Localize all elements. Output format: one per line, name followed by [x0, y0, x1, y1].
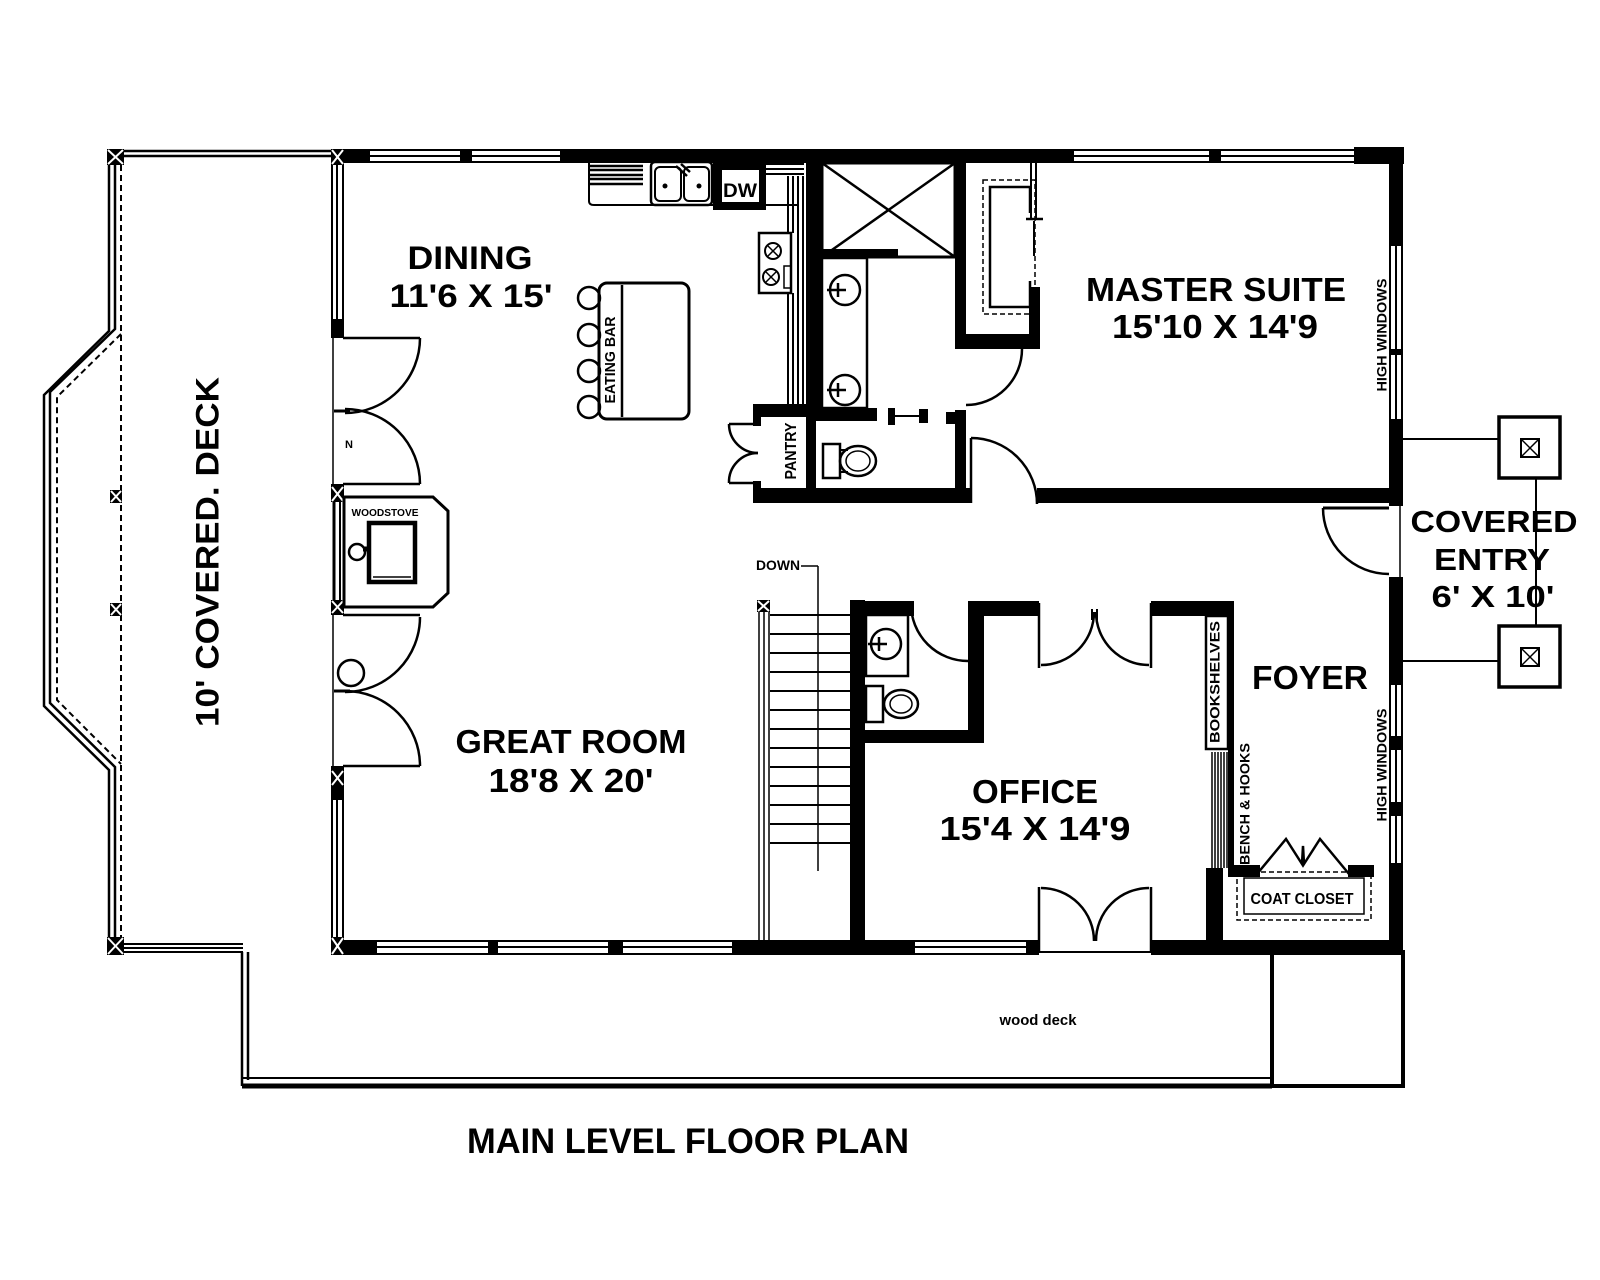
svg-text:11'6 X 15': 11'6 X 15' [390, 278, 553, 314]
svg-text:wood deck: wood deck [999, 1012, 1078, 1029]
svg-text:BOOKSHELVES: BOOKSHELVES [1207, 621, 1223, 743]
svg-text:15'10 X 14'9: 15'10 X 14'9 [1112, 308, 1318, 345]
svg-text:BENCH & HOOKS: BENCH & HOOKS [1237, 743, 1253, 865]
svg-text:HIGH WINDOWS: HIGH WINDOWS [1374, 279, 1390, 392]
svg-text:15'4 X 14'9: 15'4 X 14'9 [940, 810, 1131, 847]
svg-text:WOODSTOVE: WOODSTOVE [352, 508, 419, 519]
svg-text:DOWN: DOWN [756, 557, 800, 573]
svg-text:MASTER SUITE: MASTER SUITE [1086, 271, 1346, 308]
svg-text:FOYER: FOYER [1252, 659, 1368, 696]
svg-text:GREAT ROOM: GREAT ROOM [456, 723, 687, 760]
svg-text:COVERED: COVERED [1411, 504, 1578, 539]
svg-text:HIGH WINDOWS: HIGH WINDOWS [1374, 709, 1390, 822]
svg-text:N: N [345, 439, 353, 451]
svg-text:18'8 X 20': 18'8 X 20' [489, 762, 654, 799]
svg-text:DINING: DINING [408, 240, 533, 276]
svg-text:DW: DW [723, 181, 757, 202]
svg-text:EATING BAR: EATING BAR [602, 316, 619, 403]
svg-text:PANTRY: PANTRY [783, 422, 800, 479]
svg-text:COAT CLOSET: COAT CLOSET [1251, 891, 1354, 908]
svg-text:MAIN LEVEL FLOOR PLAN: MAIN LEVEL FLOOR PLAN [467, 1122, 909, 1161]
svg-text:ENTRY: ENTRY [1434, 542, 1550, 577]
svg-text:OFFICE: OFFICE [972, 773, 1098, 810]
svg-text:10' COVERED. DECK: 10' COVERED. DECK [189, 377, 225, 727]
